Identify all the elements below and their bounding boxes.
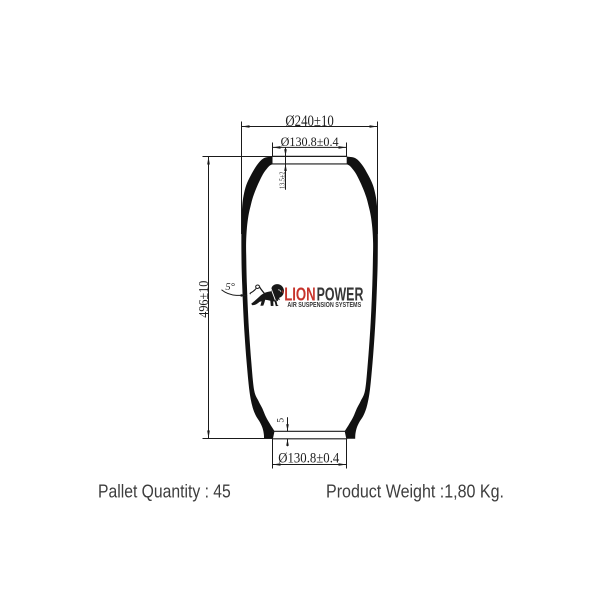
svg-text:Product Weight :1,80 Kg.: Product Weight :1,80 Kg. <box>326 482 504 502</box>
svg-text:Ø240±10: Ø240±10 <box>285 113 334 130</box>
svg-text:AIR SUSPENSION SYSTEMS: AIR SUSPENSION SYSTEMS <box>287 300 361 309</box>
svg-text:13.5±2: 13.5±2 <box>278 171 287 188</box>
svg-text:5: 5 <box>277 418 287 423</box>
svg-text:Pallet Quantity : 45: Pallet Quantity : 45 <box>98 482 231 502</box>
svg-text:Ø130.8±0.4: Ø130.8±0.4 <box>278 450 339 466</box>
svg-text:496±10: 496±10 <box>196 280 211 317</box>
svg-text:Ø130.8±0.4: Ø130.8±0.4 <box>281 135 339 149</box>
svg-text:5°: 5° <box>225 282 235 293</box>
